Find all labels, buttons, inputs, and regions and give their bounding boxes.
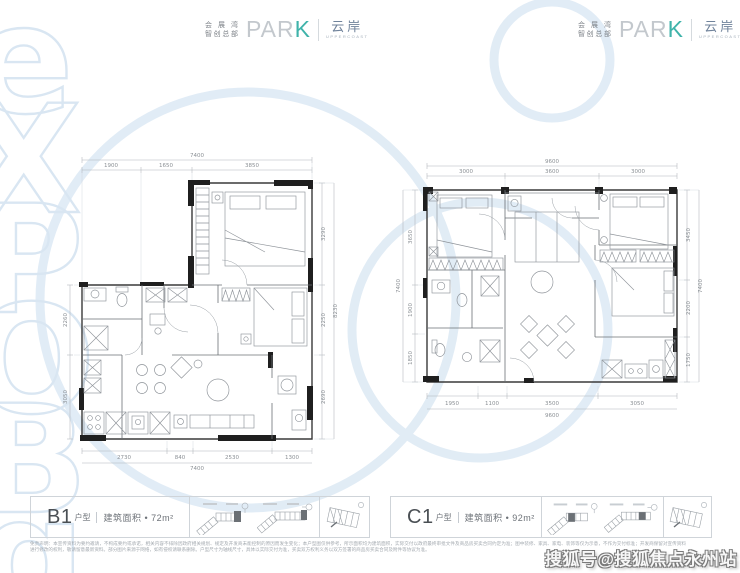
bathroom-fixtures-icon — [432, 276, 500, 362]
svg-text:8230: 8230 — [333, 304, 339, 318]
brand-sub-cn: 云岸 — [704, 20, 736, 34]
svg-text:1750: 1750 — [686, 353, 692, 367]
bed-icon — [212, 192, 305, 266]
label-divider — [458, 512, 459, 523]
bed-icon — [241, 288, 307, 346]
brand-sub-en: UPPERCOAST — [326, 34, 369, 40]
b1-dim-left: 2260 3050 — [63, 285, 80, 439]
brand-cn: 会展湾 智创总部 — [205, 21, 239, 39]
bed-icon — [612, 268, 674, 316]
brand-cn-line1: 会展湾 — [578, 21, 612, 30]
svg-text:3450: 3450 — [686, 228, 692, 242]
b1-info-strip: B1 户型 建筑面积 • 72m² — [30, 496, 370, 538]
storage-cabinet-icon — [146, 288, 187, 334]
brand-sub-cn: 云岸 — [331, 20, 363, 34]
svg-text:3600: 3600 — [545, 169, 559, 175]
brand-sub: 云岸 UPPERCOAST — [699, 20, 740, 40]
svg-text:2530: 2530 — [225, 455, 239, 461]
brand-cn-line2: 智创总部 — [205, 30, 239, 39]
bathroom-fixtures-icon — [84, 287, 128, 350]
closet-hatch-icon — [222, 288, 250, 301]
plan-type-label: 户型 — [74, 512, 90, 523]
svg-text:3650: 3650 — [408, 230, 414, 244]
svg-text:7400: 7400 — [190, 466, 204, 472]
living-room-icon — [171, 357, 254, 428]
svg-text:2690: 2690 — [321, 390, 327, 404]
b1-interior-walls — [82, 285, 312, 439]
mini-floorplate-icon — [257, 499, 315, 535]
door-swing-arcs — [125, 260, 247, 355]
brand-park-wordmark: PARK — [246, 18, 311, 41]
brand-sub-en: UPPERCOAST — [699, 34, 740, 40]
logo-divider — [691, 19, 692, 41]
svg-text:3850: 3850 — [245, 163, 259, 169]
b1-label: B1 户型 建筑面积 • 72m² — [31, 497, 189, 537]
svg-text:2250: 2250 — [321, 313, 327, 327]
svg-text:7400: 7400 — [190, 153, 204, 159]
c1-info-strip: C1 户型 建筑面积 • 92m² — [390, 496, 712, 538]
mini-siteplan-icon — [323, 499, 367, 535]
brand-logo-right: 会展湾 智创总部 PARK 云岸 UPPERCOAST — [578, 18, 740, 41]
brand-cn-line2: 智创总部 — [578, 30, 612, 39]
brand-park-wordmark: PARK — [619, 18, 684, 41]
label-divider — [96, 512, 97, 523]
svg-text:1950: 1950 — [445, 401, 459, 407]
brand-park-accent: K — [668, 16, 684, 42]
svg-text:7400: 7400 — [396, 279, 402, 293]
svg-text:3050: 3050 — [63, 390, 69, 404]
svg-text:3050: 3050 — [630, 401, 644, 407]
kitchen-counter-icon — [84, 360, 170, 434]
wardrobe-icon — [196, 188, 209, 274]
wardrobe-zigzag-icon — [600, 250, 674, 262]
c1-location-thumbs — [541, 497, 663, 537]
svg-text:9600: 9600 — [545, 159, 559, 165]
plan-area: 建筑面积 • 72m² — [103, 511, 173, 524]
c1-dim-top: 9600 3000 3600 3000 — [427, 159, 677, 188]
bed-icon — [429, 192, 492, 257]
svg-text:1100: 1100 — [485, 401, 499, 407]
brand-park-accent: K — [295, 16, 311, 42]
logo-divider — [318, 19, 319, 41]
svg-text:1900: 1900 — [408, 303, 414, 317]
svg-text:9600: 9600 — [545, 413, 559, 419]
svg-text:1850: 1850 — [408, 351, 414, 365]
b1-location-thumbs — [189, 497, 319, 537]
c1-dim-right: 3450 2200 1750 7400 — [679, 190, 704, 382]
svg-text:1300: 1300 — [285, 455, 299, 461]
svg-text:2730: 2730 — [117, 455, 131, 461]
svg-text:1900: 1900 — [104, 163, 118, 169]
mini-floorplate-icon — [545, 499, 601, 535]
b1-dim-top: 7400 1900 1650 3850 — [82, 153, 312, 283]
balcony-icon — [505, 193, 599, 211]
brand-sub: 云岸 UPPERCOAST — [326, 20, 369, 40]
plan-code: C1 — [407, 506, 434, 529]
mini-floorplate-icon — [604, 499, 660, 535]
sofa-icon — [515, 212, 579, 293]
mini-siteplan-icon — [666, 499, 710, 535]
brand-logo-left: 会展湾 智创总部 PARK 云岸 UPPERCOAST — [205, 18, 369, 41]
c1-dim-left: 3650 1900 1850 7400 — [396, 190, 425, 382]
brand-cn-line1: 会展湾 — [205, 21, 239, 30]
bed-icon — [601, 194, 668, 249]
svg-text:840: 840 — [175, 455, 186, 461]
svg-text:3500: 3500 — [545, 401, 559, 407]
wardrobe-zigzag-icon — [429, 258, 503, 270]
dining-set-icon — [137, 365, 166, 394]
b1-dim-bottom: 2730 840 2530 1300 7400 — [82, 441, 312, 472]
c1-label: C1 户型 建筑面积 • 92m² — [391, 497, 541, 537]
svg-text:1650: 1650 — [159, 163, 173, 169]
svg-text:2200: 2200 — [686, 301, 692, 315]
plan-code: B1 — [47, 506, 72, 529]
sohu-watermark: 搜狐号@搜狐焦点永州站 — [545, 545, 737, 570]
dining-set-icon — [521, 316, 575, 359]
balcony-appliances-icon — [278, 376, 306, 430]
plan-area: 建筑面积 • 92m² — [465, 511, 535, 524]
svg-text:3000: 3000 — [459, 169, 473, 175]
floorplan-c1: 9600 3000 3600 3000 1950 1100 3500 3050 … — [382, 150, 722, 450]
svg-text:3000: 3000 — [631, 169, 645, 175]
floorplan-b1: 7400 1900 1650 3850 2730 840 2530 1300 7… — [22, 138, 362, 472]
c1-dim-bottom: 1950 1100 3500 3050 9600 — [427, 386, 677, 419]
plan-type-label: 户型 — [436, 512, 452, 523]
b1-siteplan-thumb — [319, 497, 369, 537]
brand-cn: 会展湾 智创总部 — [578, 21, 612, 39]
b1-dim-right: 3290 2250 2690 8230 — [314, 183, 339, 439]
kitchen-counter-icon — [602, 340, 675, 378]
c1-siteplan-thumb — [663, 497, 711, 537]
svg-text:7400: 7400 — [698, 279, 704, 293]
page: e X P O B q 会展湾 智创总部 PARK 云岸 UPPERCOAST … — [0, 0, 740, 573]
svg-text:3290: 3290 — [321, 227, 327, 241]
b1-outline — [82, 183, 312, 439]
c1-structural-walls — [423, 187, 677, 383]
svg-text:2260: 2260 — [63, 313, 69, 327]
mini-floorplate-icon — [194, 499, 252, 535]
